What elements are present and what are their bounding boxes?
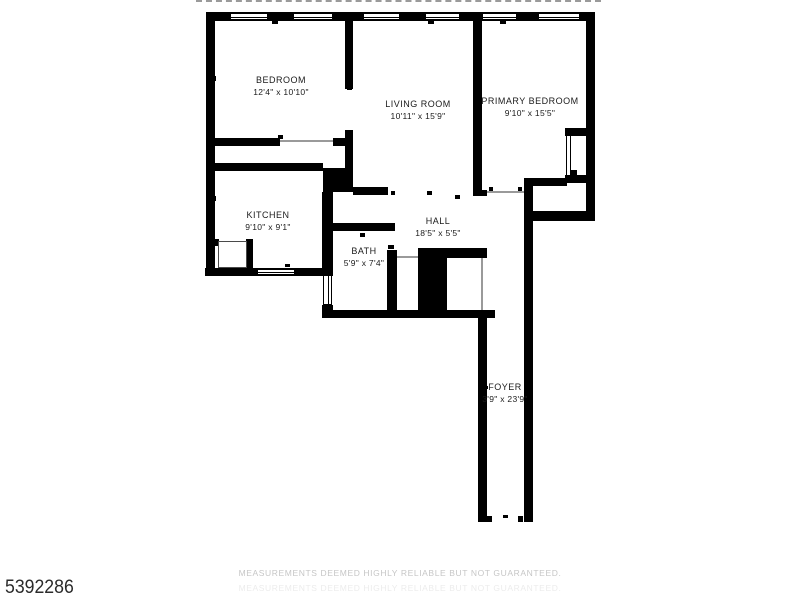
wall-segment <box>322 192 333 275</box>
room-dimensions: 10'11" x 15'9" <box>385 110 451 122</box>
door-opening-line <box>280 140 333 142</box>
jamb-tick <box>212 196 216 201</box>
wall-segment <box>387 250 397 318</box>
jamb-tick <box>455 195 460 199</box>
wall-segment <box>333 138 353 146</box>
room-dimensions: 9'10" x 9'1" <box>245 221 291 233</box>
jamb-tick <box>428 21 434 24</box>
room-name: BATH <box>344 245 384 257</box>
jamb-tick <box>458 251 463 255</box>
wall-segment <box>206 138 280 146</box>
door-opening-line <box>481 258 483 310</box>
room-label-bedroom: BEDROOM12'4" x 10'10" <box>253 74 309 98</box>
jamb-tick <box>427 191 432 195</box>
wall-segment <box>322 223 395 231</box>
jamb-tick <box>347 86 352 90</box>
wall-segment <box>418 255 447 318</box>
room-name: BEDROOM <box>253 74 309 86</box>
wall-segment <box>246 239 253 269</box>
room-name: HALL <box>415 215 461 227</box>
jamb-tick <box>278 135 283 139</box>
wall-segment <box>565 175 587 183</box>
jamb-tick <box>283 167 288 171</box>
room-label-kitchen: KITCHEN9'10" x 9'1" <box>245 209 291 233</box>
room-label-hall: HALL18'5" x 5'5" <box>415 215 461 239</box>
closet-door-line <box>566 136 571 175</box>
wall-segment <box>524 211 595 221</box>
wall-segment <box>353 187 388 195</box>
room-label-foyer: FOYER3'9" x 23'9" <box>482 381 528 405</box>
wall-segment <box>478 310 487 522</box>
room-name: FOYER <box>482 381 528 393</box>
room-label-living-room: LIVING ROOM10'11" x 15'9" <box>385 98 451 122</box>
wall-segment <box>322 310 495 318</box>
room-label-bath: BATH5'9" x 7'4" <box>344 245 384 269</box>
wall-segment <box>586 12 595 221</box>
window-symbol <box>363 13 400 20</box>
wall-segment <box>345 21 353 89</box>
window-symbol <box>293 13 333 20</box>
window-symbol <box>323 275 332 305</box>
floorplan-canvas: BEDROOM12'4" x 10'10"LIVING ROOM10'11" x… <box>0 0 800 600</box>
room-name: PRIMARY BEDROOM <box>481 95 578 107</box>
room-label-primary-bedroom: PRIMARY BEDROOM9'10" x 15'5" <box>481 95 578 119</box>
wall-segment <box>565 128 587 136</box>
jamb-tick <box>500 21 506 24</box>
room-dimensions: 9'10" x 15'5" <box>481 107 578 119</box>
window-symbol <box>425 13 460 20</box>
wall-segment <box>206 163 323 171</box>
door-opening-line <box>397 256 418 258</box>
wall-segment <box>487 516 492 522</box>
jamb-tick <box>360 233 365 237</box>
room-name: LIVING ROOM <box>385 98 451 110</box>
wall-segment <box>323 168 353 192</box>
listing-id: 5392286 <box>5 577 74 599</box>
wall-segment <box>524 178 533 522</box>
wall-segment <box>524 178 567 186</box>
window-symbol <box>538 13 580 20</box>
jamb-tick <box>489 187 493 191</box>
jamb-tick <box>391 191 395 195</box>
jamb-tick <box>388 245 394 249</box>
jamb-tick <box>503 515 508 518</box>
jamb-tick <box>285 264 290 267</box>
room-dimensions: 5'9" x 7'4" <box>344 257 384 269</box>
disclaimer-text: MEASUREMENTS DEEMED HIGHLY RELIABLE BUT … <box>0 568 800 578</box>
floorplan-page: BEDROOM12'4" x 10'10"LIVING ROOM10'11" x… <box>0 0 800 600</box>
room-dimensions: 3'9" x 23'9" <box>482 393 528 405</box>
fixture-outline <box>218 241 247 268</box>
jamb-tick <box>518 187 522 191</box>
room-name: KITCHEN <box>245 209 291 221</box>
room-dimensions: 12'4" x 10'10" <box>253 86 309 98</box>
window-symbol <box>257 269 295 275</box>
wall-segment <box>518 516 523 522</box>
jamb-tick <box>272 21 278 24</box>
door-opening-line <box>487 191 524 193</box>
disclaimer-text-faint: MEASUREMENTS DEEMED HIGHLY RELIABLE BUT … <box>0 583 800 593</box>
window-symbol <box>482 13 517 20</box>
room-dimensions: 18'5" x 5'5" <box>415 227 461 239</box>
window-symbol <box>230 13 268 20</box>
jamb-tick <box>212 76 216 81</box>
